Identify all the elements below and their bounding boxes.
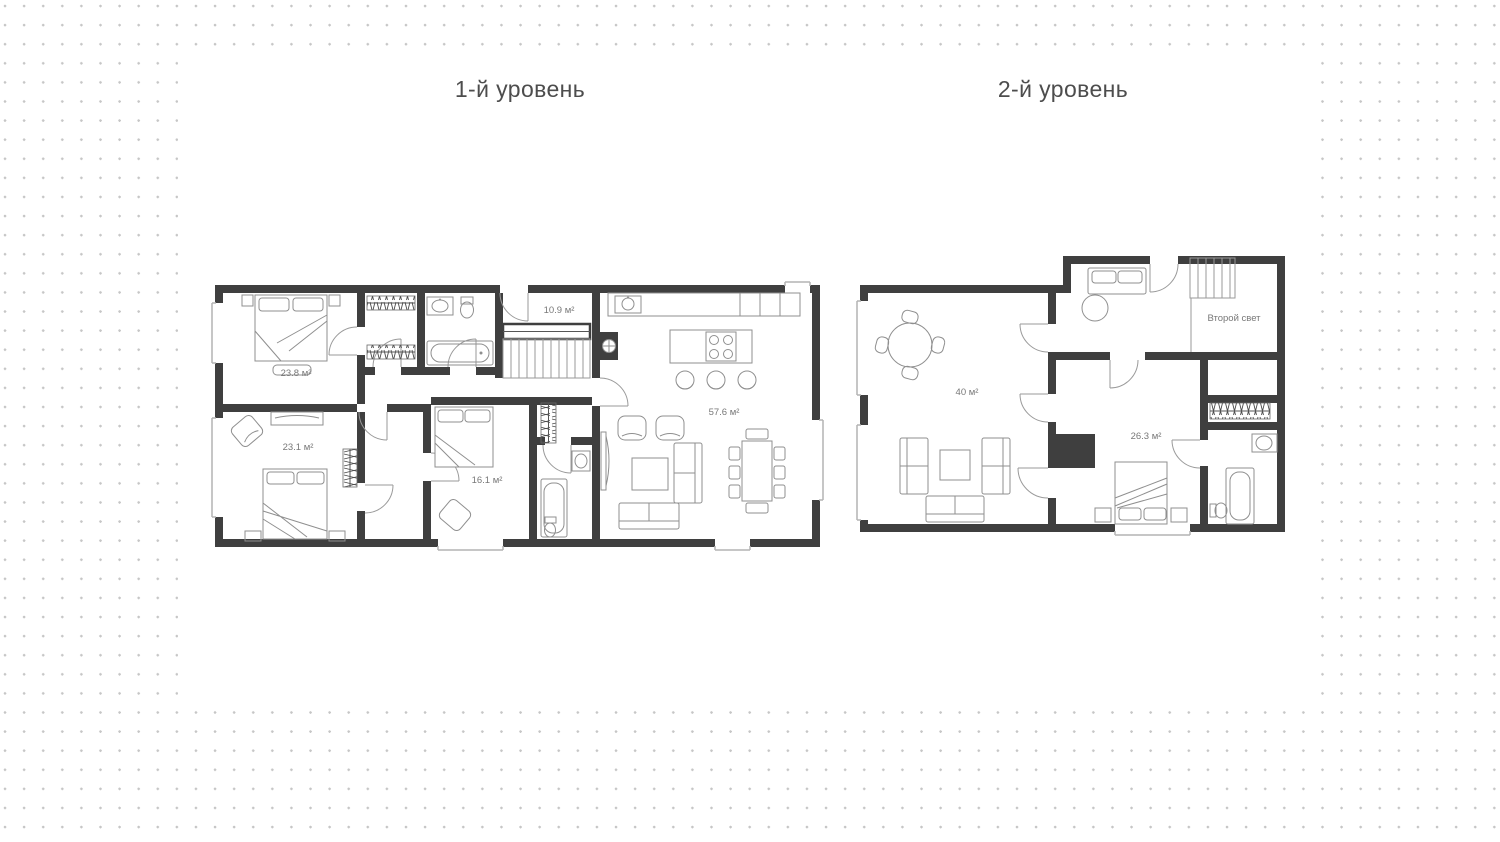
double-bed-icon xyxy=(242,295,340,375)
room-area-label: 16.1 м² xyxy=(472,475,503,486)
second-bedroom-icons xyxy=(229,412,357,541)
stairs-icon xyxy=(1190,258,1235,352)
kitchen-icons xyxy=(608,293,800,389)
third-bedroom-icons xyxy=(435,403,556,533)
study-icons xyxy=(1082,268,1146,321)
room-area-label: 40 м² xyxy=(956,387,979,398)
level-1-title: 1-й уровень xyxy=(455,76,585,103)
door-arcs xyxy=(1018,264,1200,498)
upper-bathroom-icons xyxy=(1210,403,1277,524)
stairs-icon xyxy=(503,324,590,378)
middle-bathroom-icons xyxy=(541,451,590,537)
room-area-label: 57.6 м² xyxy=(709,407,740,418)
vent-icon xyxy=(603,340,616,353)
floor-plan-level-1: 23.8 м² 10.9 м² 57.6 м² 23.1 м² 16.1 м² xyxy=(209,279,826,555)
room-area-label: 10.9 м² xyxy=(544,305,575,316)
round-table-icon xyxy=(874,309,946,381)
room-area-label: 26.3 м² xyxy=(1131,431,1162,442)
walls xyxy=(860,256,1285,532)
room-area-label: 23.1 м² xyxy=(283,442,314,453)
wardrobe-rack-icon xyxy=(367,296,415,359)
floor-plan-level-2: 40 м² Второй свет 26.3 м² xyxy=(854,250,1291,538)
sofa-set-icon xyxy=(900,438,1010,522)
living-room-icons xyxy=(601,416,785,529)
room-area-label: 23.8 м² xyxy=(281,368,312,379)
upper-bedroom-icons xyxy=(1095,462,1187,524)
room-area-label: Второй свет xyxy=(1207,313,1261,324)
bathroom-icons xyxy=(427,297,493,365)
level-2-title: 2-й уровень xyxy=(998,76,1128,103)
